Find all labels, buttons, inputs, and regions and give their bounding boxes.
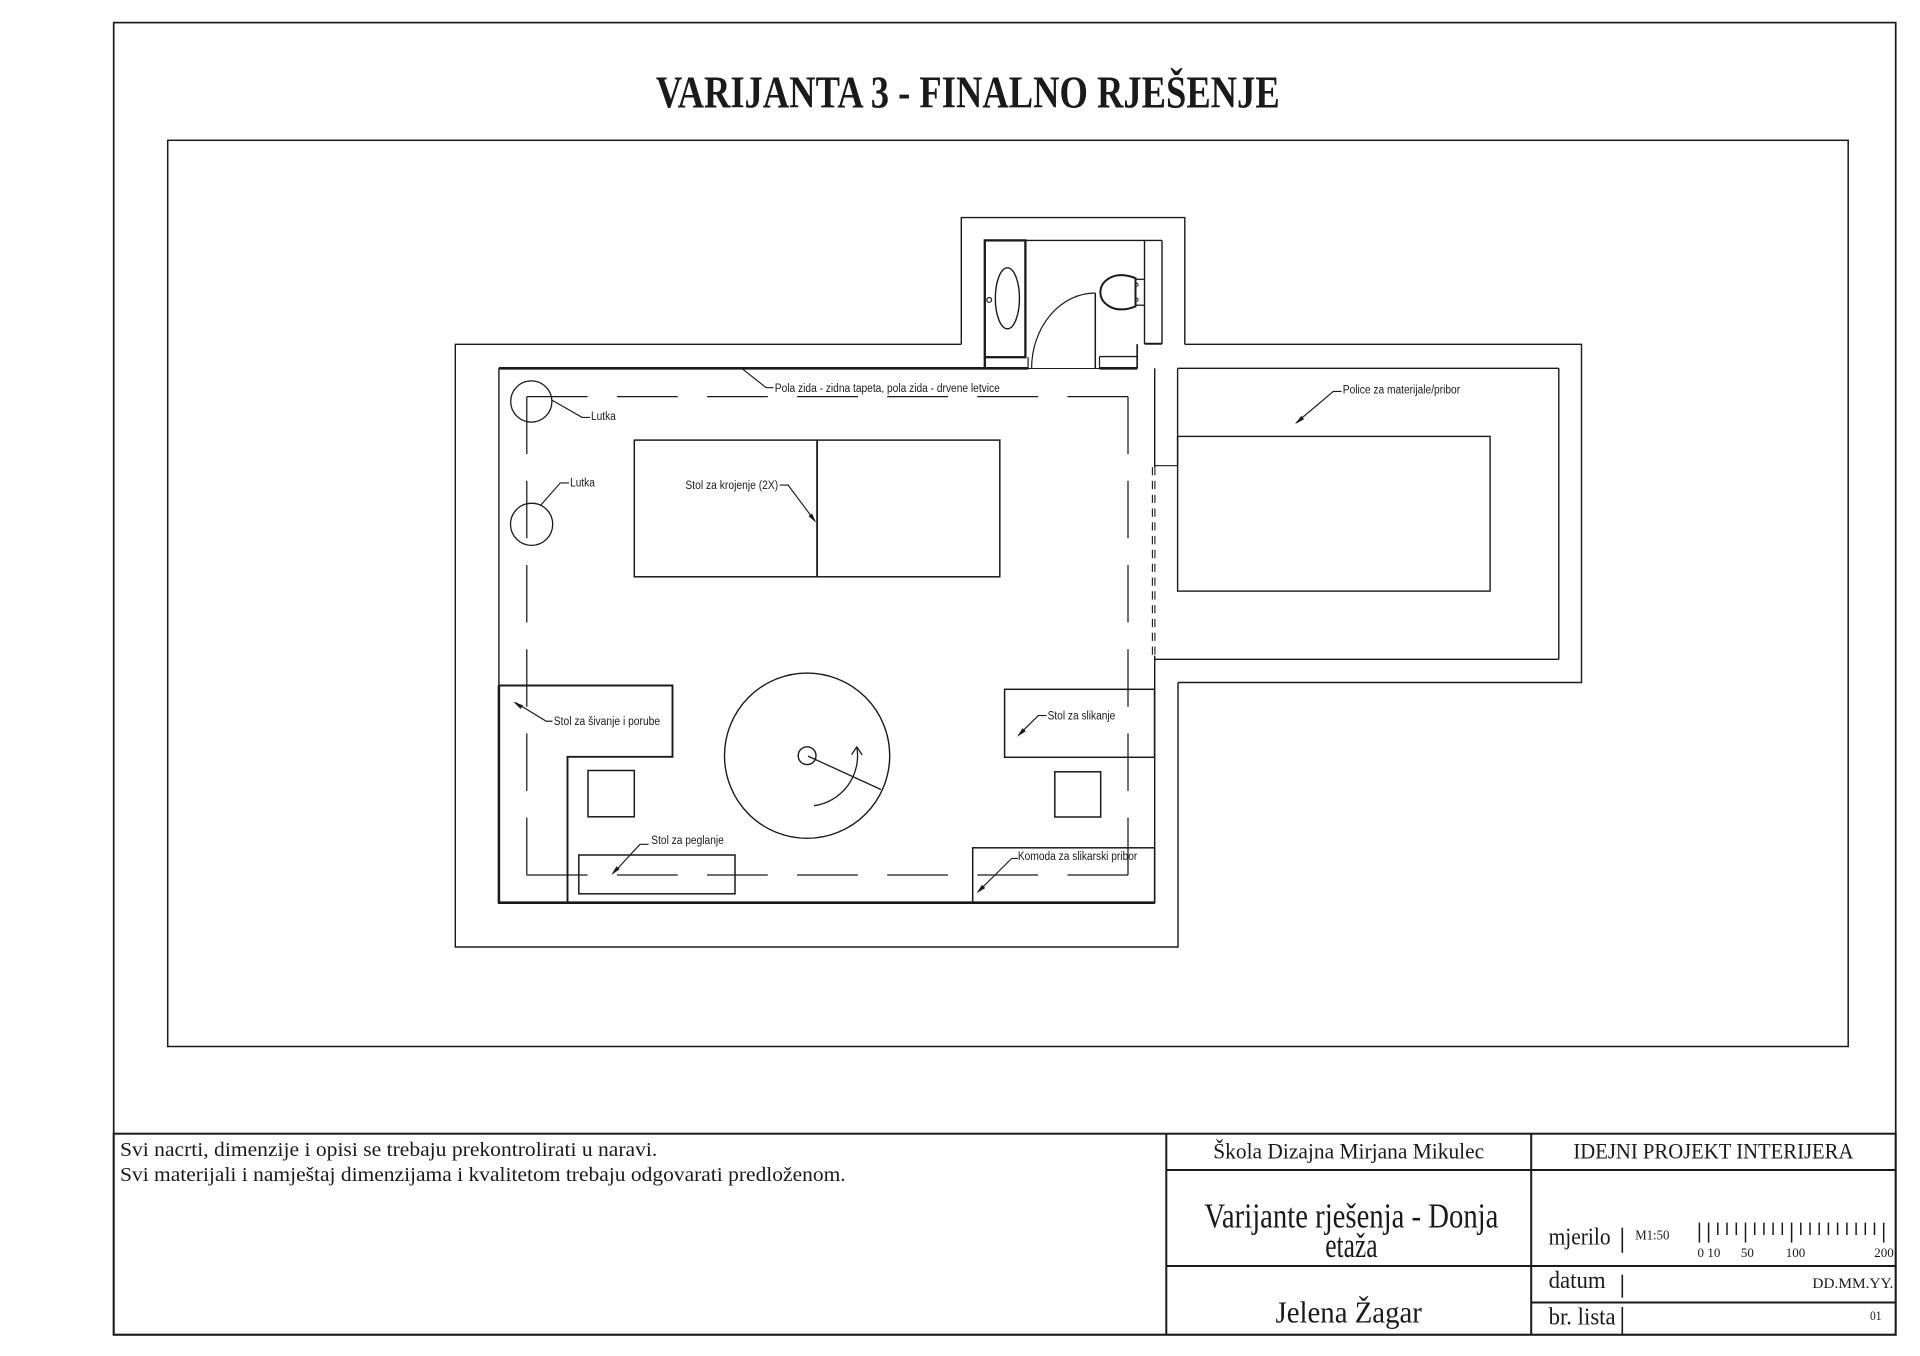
svg-text:VARIJANTA 3 - FINALNO RJEŠENJE: VARIJANTA 3 - FINALNO RJEŠENJE bbox=[656, 68, 1280, 118]
svg-text:Lutka: Lutka bbox=[591, 411, 616, 423]
svg-text:IDEJNI PROJEKT INTERIJERA: IDEJNI PROJEKT INTERIJERA bbox=[1573, 1138, 1853, 1163]
svg-text:Stol za krojenje (2X): Stol za krojenje (2X) bbox=[685, 480, 778, 492]
svg-text:Jelena Žagar: Jelena Žagar bbox=[1276, 1295, 1423, 1330]
svg-text:200: 200 bbox=[1874, 1245, 1894, 1260]
svg-text:Svi nacrti, dimenzije i opisi: Svi nacrti, dimenzije i opisi se trebaju… bbox=[120, 1139, 657, 1161]
svg-text:Stol za peglanje: Stol za peglanje bbox=[651, 835, 724, 847]
svg-text:50: 50 bbox=[1741, 1245, 1754, 1260]
svg-text:br. lista: br. lista bbox=[1549, 1304, 1616, 1331]
svg-text:M1:50: M1:50 bbox=[1635, 1228, 1670, 1243]
svg-text:100: 100 bbox=[1786, 1245, 1806, 1260]
svg-text:Komoda za slikarski pribor: Komoda za slikarski pribor bbox=[1018, 851, 1138, 863]
svg-text:etaža: etaža bbox=[1325, 1226, 1378, 1265]
svg-text:Stol za šivanje i porube: Stol za šivanje i porube bbox=[554, 716, 660, 728]
svg-text:01: 01 bbox=[1870, 1308, 1882, 1323]
svg-text:Škola Dizajna Mirjana Mikulec: Škola Dizajna Mirjana Mikulec bbox=[1213, 1138, 1484, 1163]
svg-text:Lutka: Lutka bbox=[570, 477, 595, 489]
svg-text:0: 0 bbox=[1697, 1245, 1704, 1260]
svg-text:Police za materijale/pribor: Police za materijale/pribor bbox=[1343, 385, 1460, 397]
svg-text:DD.MM.YY.: DD.MM.YY. bbox=[1812, 1275, 1893, 1292]
svg-text:Pola zida - zidna tapeta, pola: Pola zida - zidna tapeta, pola zida - dr… bbox=[775, 383, 1000, 395]
svg-text:Svi materijali i namještaj dim: Svi materijali i namještaj dimenzijama i… bbox=[120, 1164, 846, 1186]
svg-text:10: 10 bbox=[1707, 1245, 1720, 1260]
svg-text:Stol za slikanje: Stol za slikanje bbox=[1048, 711, 1116, 723]
svg-text:datum: datum bbox=[1549, 1267, 1606, 1294]
svg-text:mjerilo: mjerilo bbox=[1549, 1223, 1611, 1250]
